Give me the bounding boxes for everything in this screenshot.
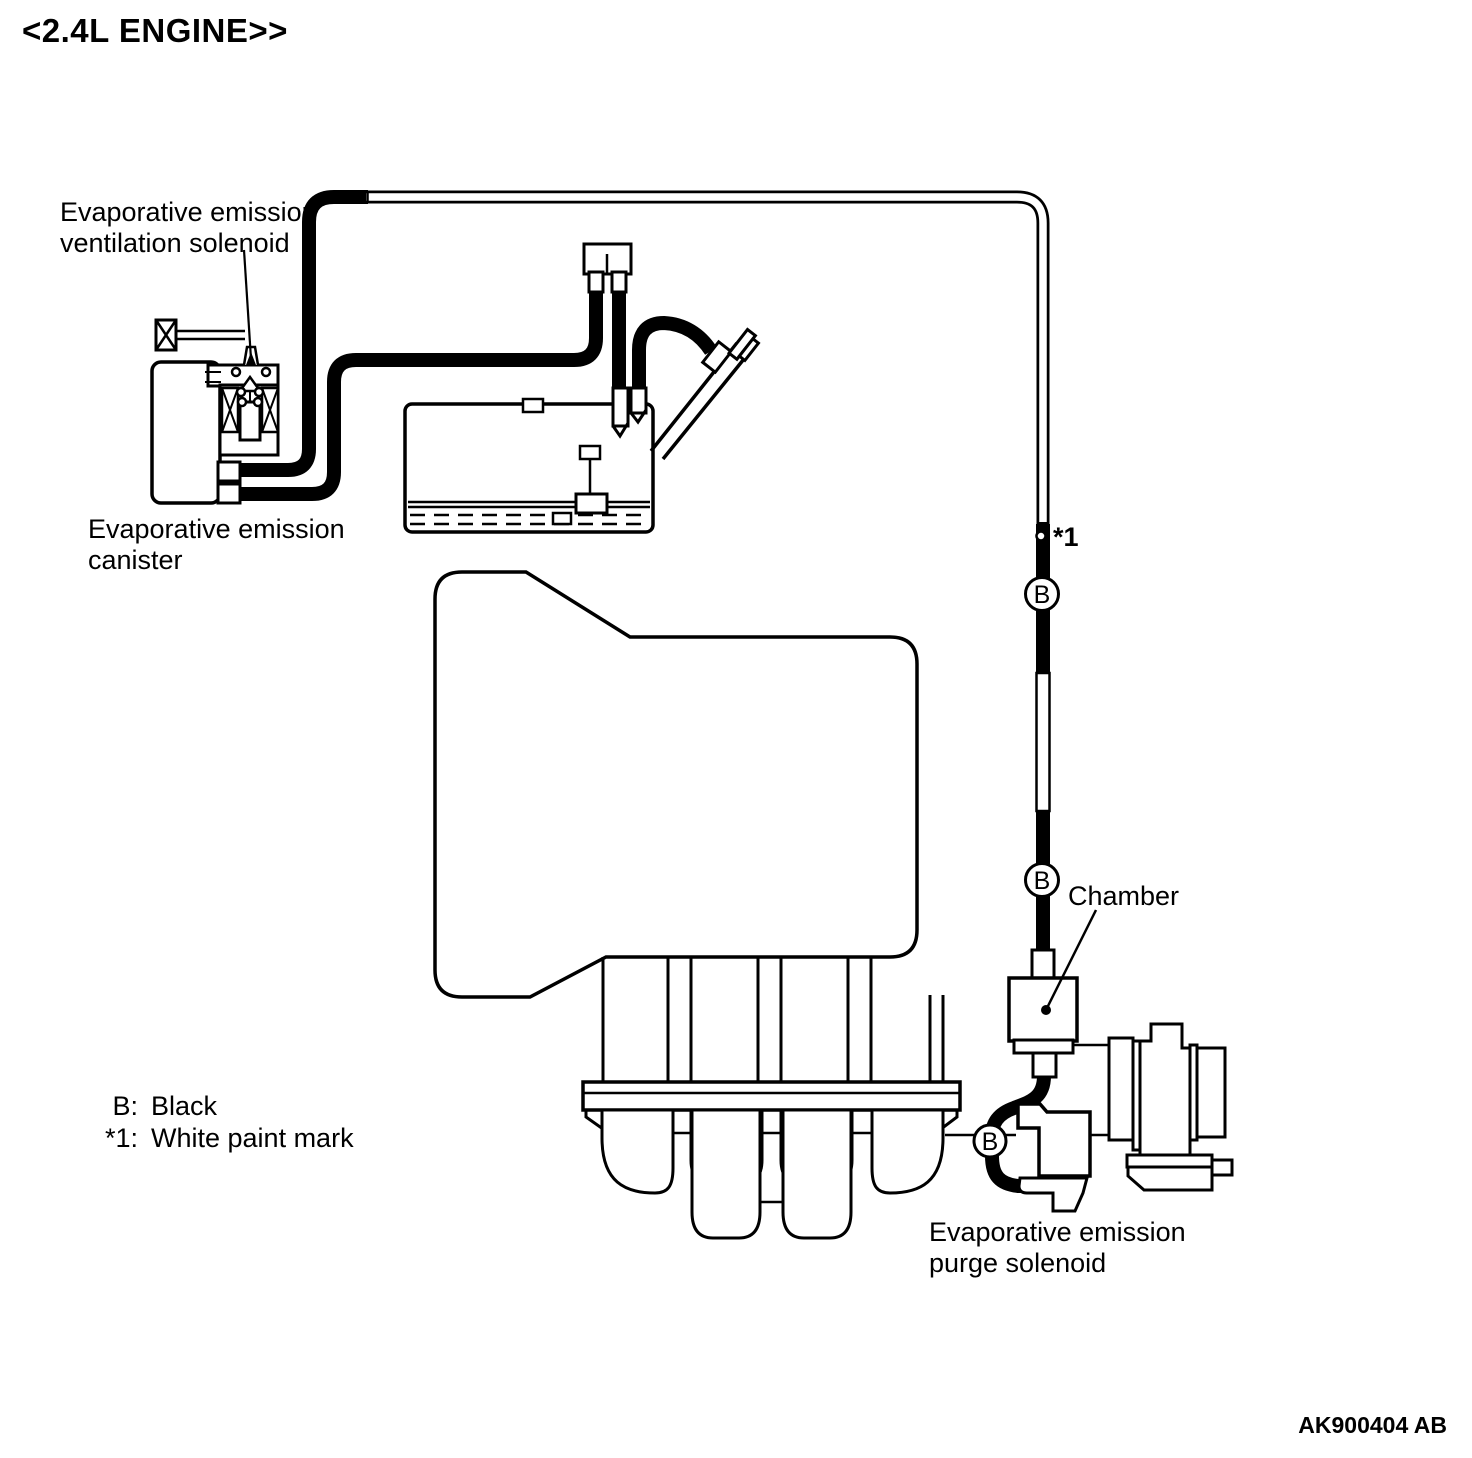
tank-hose-connector — [584, 244, 631, 292]
throttle-body — [1109, 1024, 1232, 1190]
label-line: Evaporative emission — [60, 197, 317, 228]
label-chamber: Chamber — [1068, 881, 1179, 912]
fuel-tank — [405, 244, 761, 532]
vacuum-hose-routing-diagram: B B B *1 <2.4L ENGINE>> Evaporative emis… — [0, 0, 1472, 1458]
label-line: ventilation solenoid — [60, 228, 317, 259]
chamber-inlet-neck — [1032, 950, 1054, 979]
chamber-leader-dot — [1041, 1005, 1051, 1015]
label-purge-solenoid: Evaporative emission purge solenoid — [929, 1217, 1186, 1280]
legend: B: Black *1: White paint mark — [98, 1091, 354, 1154]
color-marker-letter: B — [1034, 867, 1051, 895]
label-evap-canister: Evaporative emission canister — [88, 514, 345, 577]
purge-solenoid — [1018, 1104, 1090, 1211]
ventilation-solenoid-leader-line — [244, 250, 251, 359]
canister-port-upper — [218, 462, 240, 481]
label-line: purge solenoid — [929, 1248, 1186, 1279]
page-title: <2.4L ENGINE>> — [22, 12, 288, 50]
fuel-gauge-sender — [580, 446, 600, 459]
label-line: Evaporative emission — [88, 514, 345, 545]
legend-value: White paint mark — [151, 1123, 354, 1154]
paint-mark-label: *1 — [1053, 522, 1079, 552]
chamber-outlet-neck — [1033, 1053, 1056, 1077]
manifold-runner-bells — [602, 1110, 943, 1238]
tank-top-fitting — [523, 399, 543, 412]
legend-value: Black — [151, 1091, 354, 1122]
white-paint-mark-dot — [1037, 532, 1046, 541]
canister-port-lower — [218, 484, 240, 503]
figure-code: AK900404 AB — [1298, 1412, 1447, 1439]
color-marker-letter: B — [982, 1128, 999, 1156]
tank-port-stub — [613, 388, 628, 426]
intake-runners — [603, 957, 943, 1082]
label-ventilation-solenoid: Evaporative emission ventilation solenoi… — [60, 197, 317, 260]
label-line: canister — [88, 545, 345, 576]
manifold-flange — [583, 1082, 960, 1110]
legend-key: B: — [98, 1091, 138, 1122]
plunger — [240, 402, 260, 440]
tank-port-stub — [631, 388, 646, 413]
fuel-pump-module — [576, 494, 607, 513]
filler-neck-vapor-hose — [639, 323, 711, 392]
right-vertical-pipe-segment — [1037, 673, 1050, 811]
color-marker-letter: B — [1034, 581, 1051, 609]
label-line: Evaporative emission — [929, 1217, 1186, 1248]
legend-key: *1: — [98, 1123, 138, 1154]
intake-plenum — [435, 572, 917, 997]
